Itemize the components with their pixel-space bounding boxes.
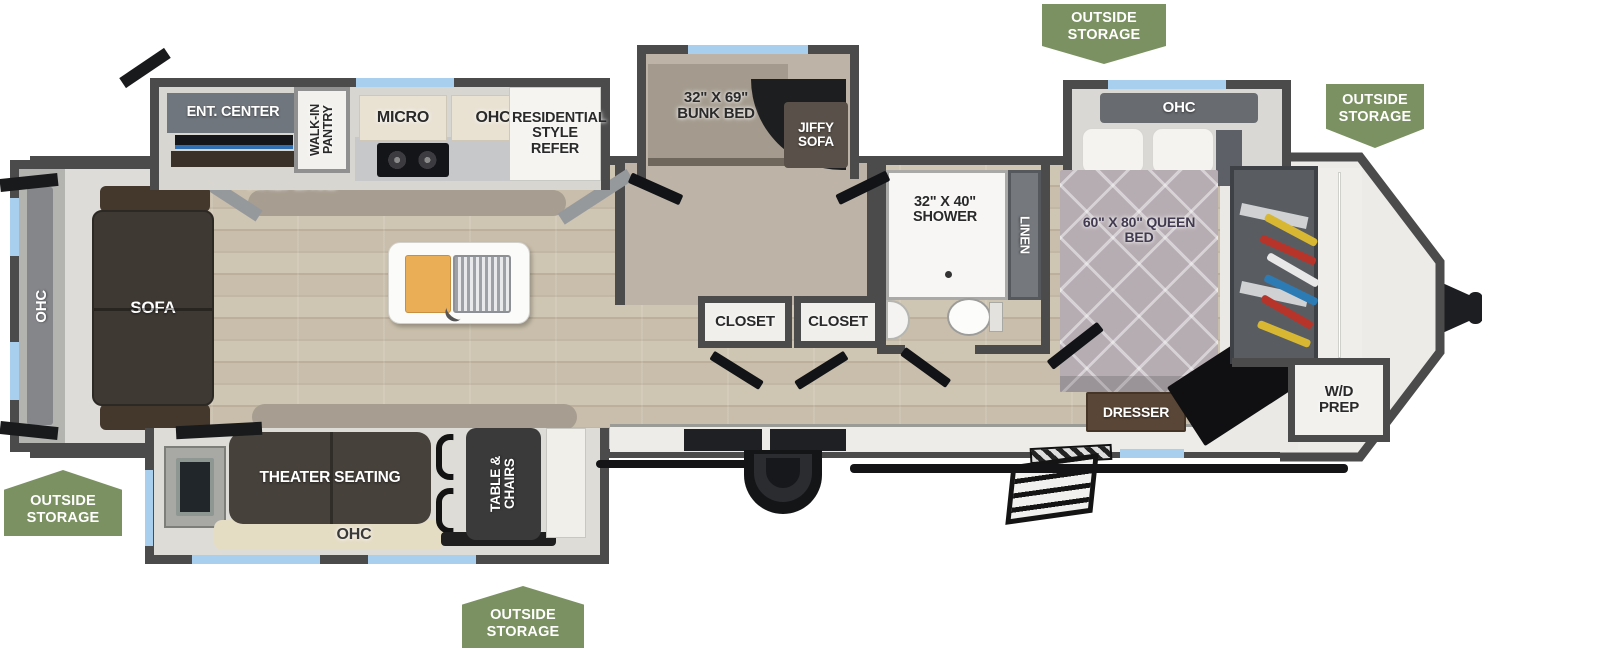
hitch-coupler-icon bbox=[1468, 292, 1482, 324]
refer-label: RESIDENTIAL STYLE REFER bbox=[512, 111, 598, 157]
outside-storage-label: OUTSIDE STORAGE bbox=[483, 607, 563, 640]
dresser: DRESSER bbox=[1086, 392, 1186, 432]
window-accent bbox=[368, 555, 476, 564]
ent-center-label: ENT. CENTER bbox=[187, 105, 280, 120]
cutting-board-icon bbox=[405, 255, 451, 313]
wd-prep-closet: W/D PREP bbox=[1288, 358, 1390, 442]
entry-landing bbox=[684, 429, 762, 451]
bath-wall-left bbox=[877, 162, 886, 354]
bathroom: 32" X 40" SHOWER LINEN bbox=[877, 162, 1050, 354]
bedroom-ohc-cabinet: OHC bbox=[1100, 93, 1258, 123]
tv-bar-icon bbox=[175, 135, 293, 145]
ent-center: ENT. CENTER bbox=[167, 93, 299, 133]
closet-right-label: CLOSET bbox=[808, 314, 868, 330]
toilet-tank-icon bbox=[989, 302, 1003, 332]
bunk-bed-label: 32" X 69" BUNK BED bbox=[661, 90, 771, 122]
awning-rail bbox=[596, 460, 748, 468]
bed-pillow-icon bbox=[1152, 128, 1214, 174]
entry-steps-icon bbox=[744, 450, 822, 514]
outside-storage-label: OUTSIDE STORAGE bbox=[1064, 10, 1144, 43]
window-accent bbox=[688, 45, 808, 54]
toilet-icon bbox=[947, 298, 991, 336]
bath-wall-bottom-right bbox=[975, 345, 1050, 354]
theater-seating: THEATER SEATING bbox=[229, 432, 431, 524]
wardrobe-rod bbox=[1338, 172, 1341, 358]
jiffy-sofa-label: JIFFY SOFA bbox=[790, 121, 842, 149]
front-wall-stub bbox=[1232, 358, 1290, 367]
window-accent bbox=[1108, 80, 1226, 89]
cooktop-icon bbox=[377, 143, 449, 177]
shower-drain-icon bbox=[945, 271, 952, 278]
linen-cabinet: LINEN bbox=[1008, 170, 1041, 300]
awning-rail bbox=[850, 464, 1348, 473]
cabinet-screen-icon bbox=[176, 458, 214, 516]
bath-wall-right bbox=[1041, 162, 1050, 354]
dinette-chair-icon bbox=[436, 434, 466, 480]
window-accent bbox=[1120, 449, 1184, 458]
outside-storage-badge: OUTSIDE STORAGE bbox=[1326, 84, 1424, 148]
queen-bed: 60" X 80" QUEEN BED bbox=[1060, 170, 1218, 392]
walk-in-pantry-label: WALK-IN PANTRY bbox=[309, 93, 335, 167]
window-accent bbox=[145, 470, 153, 546]
sofa: SOFA bbox=[92, 210, 214, 406]
rv-floorplan: FIREPLACE OHC SOFA ENT. CENTER WALK-IN P… bbox=[0, 0, 1600, 658]
outside-storage-label: OUTSIDE STORAGE bbox=[23, 493, 103, 526]
linen-label: LINEN bbox=[1018, 216, 1032, 254]
galley-mat bbox=[248, 190, 566, 216]
shower-label: 32" X 40" SHOWER bbox=[893, 195, 997, 225]
closet-left: CLOSET bbox=[698, 296, 792, 348]
outside-storage-badge: OUTSIDE STORAGE bbox=[1042, 4, 1166, 64]
bath-sink-icon bbox=[886, 300, 910, 340]
tv-screen-accent bbox=[175, 145, 293, 149]
living-mat bbox=[252, 404, 577, 430]
dinette-table: TABLE & CHAIRS bbox=[466, 428, 541, 540]
theater-seam bbox=[330, 432, 333, 524]
kitchen-ohc-label: OHC bbox=[476, 110, 511, 127]
slide-bottom: THEATER SEATING OHC TABLE & CHAIRS bbox=[145, 428, 609, 564]
bench-seat bbox=[546, 428, 586, 538]
window-accent bbox=[356, 78, 454, 87]
outside-storage-badge: OUTSIDE STORAGE bbox=[462, 586, 584, 648]
microwave-cabinet: MICRO bbox=[359, 95, 447, 141]
sofa-seam bbox=[94, 308, 212, 311]
refrigerator: RESIDENTIAL STYLE REFER bbox=[509, 87, 601, 181]
kitchen-island bbox=[388, 242, 530, 324]
bedroom-ohc-label: OHC bbox=[1163, 100, 1196, 116]
media-shelf bbox=[171, 151, 297, 167]
dinette-chair-icon bbox=[436, 488, 466, 534]
micro-label: MICRO bbox=[377, 110, 429, 127]
table-chairs-label: TABLE & CHAIRS bbox=[489, 434, 517, 534]
outside-storage-badge: OUTSIDE STORAGE bbox=[4, 470, 122, 536]
bed-pillow-icon bbox=[1082, 128, 1144, 174]
wd-prep-label: W/D PREP bbox=[1315, 384, 1363, 416]
closet-right: CLOSET bbox=[794, 296, 882, 348]
end-cabinet bbox=[164, 446, 226, 528]
window-accent bbox=[10, 342, 19, 400]
slide-kitchen: ENT. CENTER WALK-IN PANTRY MICRO OHC RES… bbox=[150, 78, 610, 190]
bottom-ohc-label: OHC bbox=[337, 527, 372, 544]
wardrobe-rod-area bbox=[1318, 168, 1362, 362]
walk-in-pantry: WALK-IN PANTRY bbox=[294, 87, 350, 173]
dresser-label: DRESSER bbox=[1103, 405, 1169, 420]
island-sink-icon bbox=[453, 255, 511, 313]
window-accent bbox=[192, 555, 320, 564]
shower: 32" X 40" SHOWER bbox=[886, 170, 1008, 300]
outside-storage-label: OUTSIDE STORAGE bbox=[1335, 92, 1415, 125]
queen-bed-label: 60" X 80" QUEEN BED bbox=[1077, 215, 1201, 244]
window-accent bbox=[10, 198, 19, 256]
entry-landing bbox=[770, 429, 846, 451]
slide-bunk: 32" X 69" BUNK BED JIFFY SOFA bbox=[637, 45, 859, 179]
rear-ohc-label: OHC bbox=[34, 290, 50, 323]
closet-left-label: CLOSET bbox=[715, 314, 775, 330]
